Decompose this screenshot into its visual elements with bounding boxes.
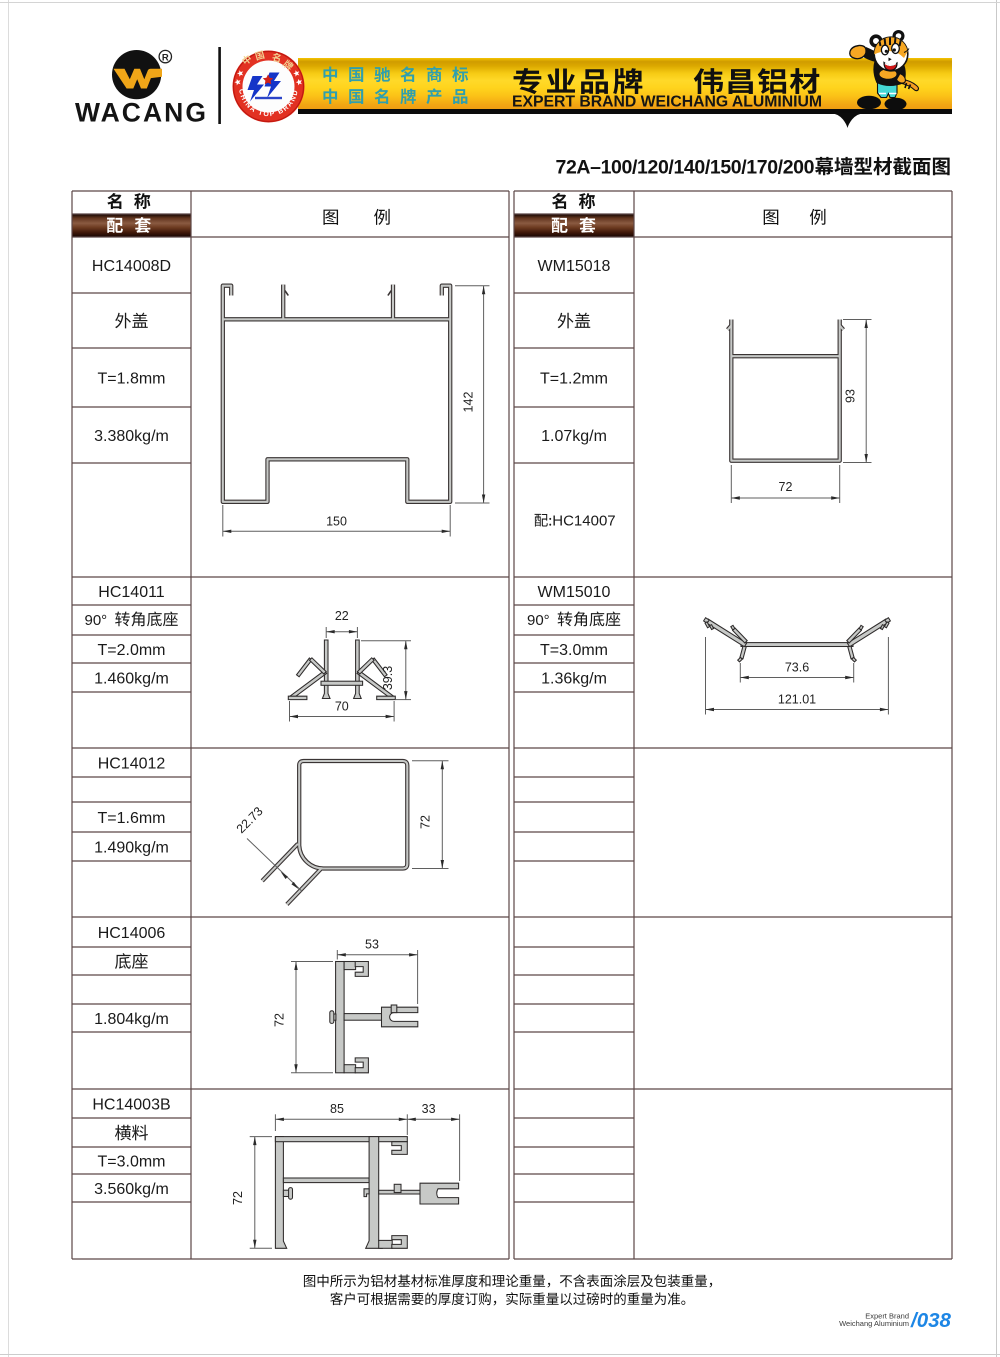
svg-text:T=3.0mm: T=3.0mm (97, 1154, 165, 1171)
svg-text:150: 150 (326, 515, 347, 529)
svg-text:90°: 90° (85, 612, 108, 629)
svg-text:121.01: 121.01 (778, 693, 816, 707)
svg-text:HC14006: HC14006 (98, 925, 166, 942)
svg-text:73.6: 73.6 (785, 661, 809, 675)
svg-text:T=1.8mm: T=1.8mm (97, 371, 165, 388)
svg-text:T=2.0mm: T=2.0mm (97, 642, 165, 659)
svg-text:1.490kg/m: 1.490kg/m (94, 840, 169, 857)
svg-text:72: 72 (273, 1013, 287, 1027)
svg-text:HC14008D: HC14008D (92, 258, 171, 275)
svg-text:HC14012: HC14012 (98, 756, 166, 773)
svg-text:HC14003B: HC14003B (92, 1097, 170, 1114)
svg-text:33: 33 (422, 1102, 436, 1116)
svg-text:HC14007: HC14007 (552, 513, 615, 530)
svg-text:85: 85 (330, 1102, 344, 1116)
svg-text:39.3: 39.3 (381, 666, 395, 690)
svg-text:Weichang Aluminium: Weichang Aluminium (839, 1319, 909, 1328)
svg-text:72: 72 (779, 480, 793, 494)
svg-text:3.560kg/m: 3.560kg/m (94, 1181, 169, 1198)
svg-text:WM15018: WM15018 (538, 258, 611, 275)
svg-text:53: 53 (365, 938, 379, 952)
svg-text:1.07kg/m: 1.07kg/m (541, 428, 607, 445)
svg-text:/038: /038 (910, 1309, 951, 1332)
svg-text:T=1.2mm: T=1.2mm (540, 371, 608, 388)
svg-text:72: 72 (231, 1191, 245, 1205)
svg-text:T=3.0mm: T=3.0mm (540, 642, 608, 659)
svg-text:70: 70 (335, 700, 349, 714)
svg-text:72A–100/120/140/150/170/200: 72A–100/120/140/150/170/200 (556, 157, 815, 179)
svg-text:72: 72 (419, 815, 433, 829)
svg-text:1.804kg/m: 1.804kg/m (94, 1011, 169, 1028)
svg-text:93: 93 (843, 389, 857, 403)
svg-text:22: 22 (335, 609, 349, 623)
svg-text:1.36kg/m: 1.36kg/m (541, 671, 607, 688)
svg-text:1.460kg/m: 1.460kg/m (94, 671, 169, 688)
svg-text:T=1.6mm: T=1.6mm (97, 810, 165, 827)
svg-text:3.380kg/m: 3.380kg/m (94, 428, 169, 445)
svg-text:WM15010: WM15010 (538, 584, 611, 601)
svg-text:22.73: 22.73 (234, 804, 266, 836)
svg-text:142: 142 (461, 392, 475, 413)
svg-text:90°: 90° (527, 612, 550, 629)
svg-text:HC14011: HC14011 (98, 584, 165, 601)
